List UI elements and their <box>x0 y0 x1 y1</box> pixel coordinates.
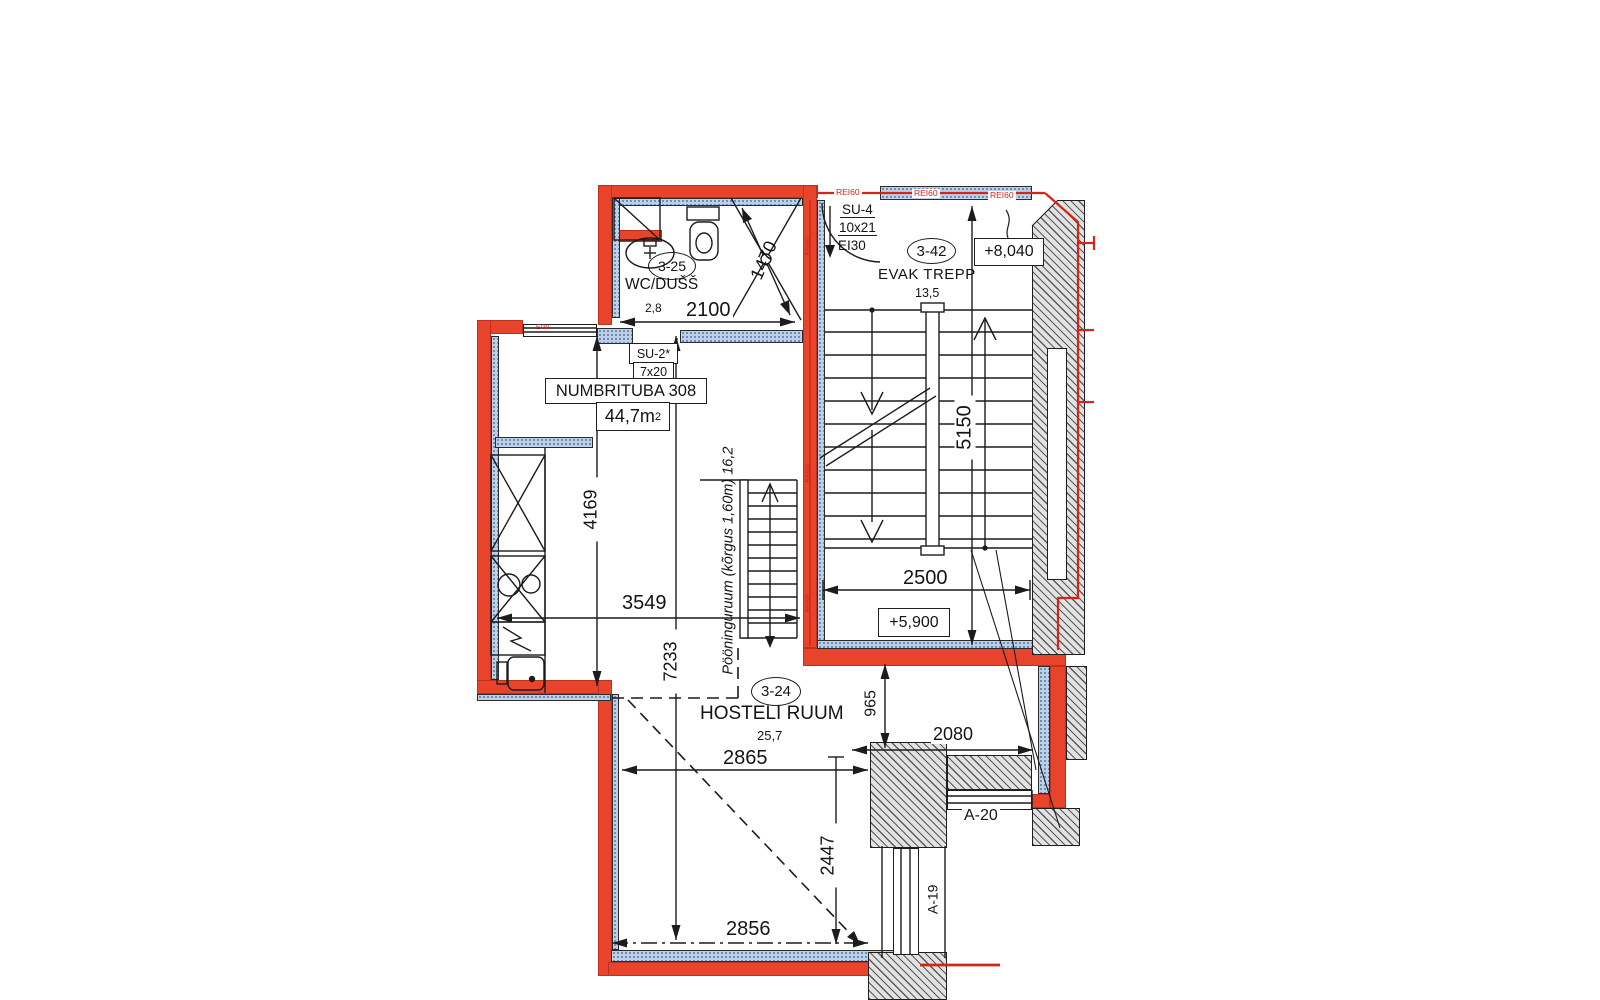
room-name-wc: WC/DUŠŠ <box>625 277 698 293</box>
door-size-su4: 10x21 <box>838 221 877 236</box>
dim-2500: 2500 <box>901 568 950 589</box>
dim-5150: 5150 <box>955 396 976 460</box>
floor-plan: 3-25 WC/DUŠŠ 2,8 2100 1470 SU-2* 7x20 EI… <box>0 0 1600 1000</box>
dim-3549: 3549 <box>620 593 669 614</box>
arrowheads <box>497 206 1033 948</box>
room-area-hostel: 25,7 <box>757 729 782 743</box>
fire-label-rei60-v3: REI60 <box>806 583 813 623</box>
room-area-wc: 2,8 <box>645 302 662 315</box>
room-tag-stair: 3-42 <box>907 238 956 264</box>
room-name-stair: EVAK TREPP <box>878 267 976 283</box>
dim-2856: 2856 <box>724 919 773 940</box>
fire-lines <box>810 193 1094 965</box>
window-label-a20: A-20 <box>962 808 1000 825</box>
fire-label-rei60-2: REI60 <box>912 189 940 198</box>
window-label-a19: A-19 <box>926 874 941 924</box>
dim-2865: 2865 <box>721 748 770 769</box>
fire-label-rei60-1: REI60 <box>834 188 862 197</box>
fire-label-rei60-v2: REI60 <box>806 453 813 493</box>
window-fire-rating: EI30 <box>536 325 549 332</box>
level-mid-box: +5,900 <box>878 608 950 637</box>
door-fire-su4: EI30 <box>838 239 866 253</box>
dim-7233: 7233 <box>662 629 681 693</box>
room-name-guest-box: NUMBRITUBA 308 <box>545 378 707 404</box>
door-tag-su4: SU-4 <box>840 203 875 218</box>
room-name-hostel: HOSTELI RUUM <box>700 704 844 724</box>
fire-label-rei60-v1: REI60 <box>806 226 813 266</box>
dim-2100: 2100 <box>684 300 733 321</box>
door-tag-su2: SU-2* <box>629 343 678 364</box>
attic-note: Pööninguruum (kõrgus 1,60m) 16,2 <box>721 426 736 696</box>
room-tag-hostel: 3-24 <box>751 677 801 706</box>
room-area-guest-box: 44,7m2 <box>596 402 670 431</box>
dim-965: 965 <box>864 676 881 730</box>
linework <box>0 0 1600 1000</box>
dim-4169: 4169 <box>582 477 601 541</box>
room-area-stair: 13,5 <box>915 287 939 300</box>
fire-label-rei60-3: REI60 <box>988 191 1016 200</box>
level-upper-box: +8,040 <box>974 238 1044 266</box>
main-lines <box>491 198 1060 958</box>
dim-2080: 2080 <box>931 725 975 744</box>
dim-2447: 2447 <box>819 823 838 887</box>
dashed-lines <box>612 643 868 944</box>
